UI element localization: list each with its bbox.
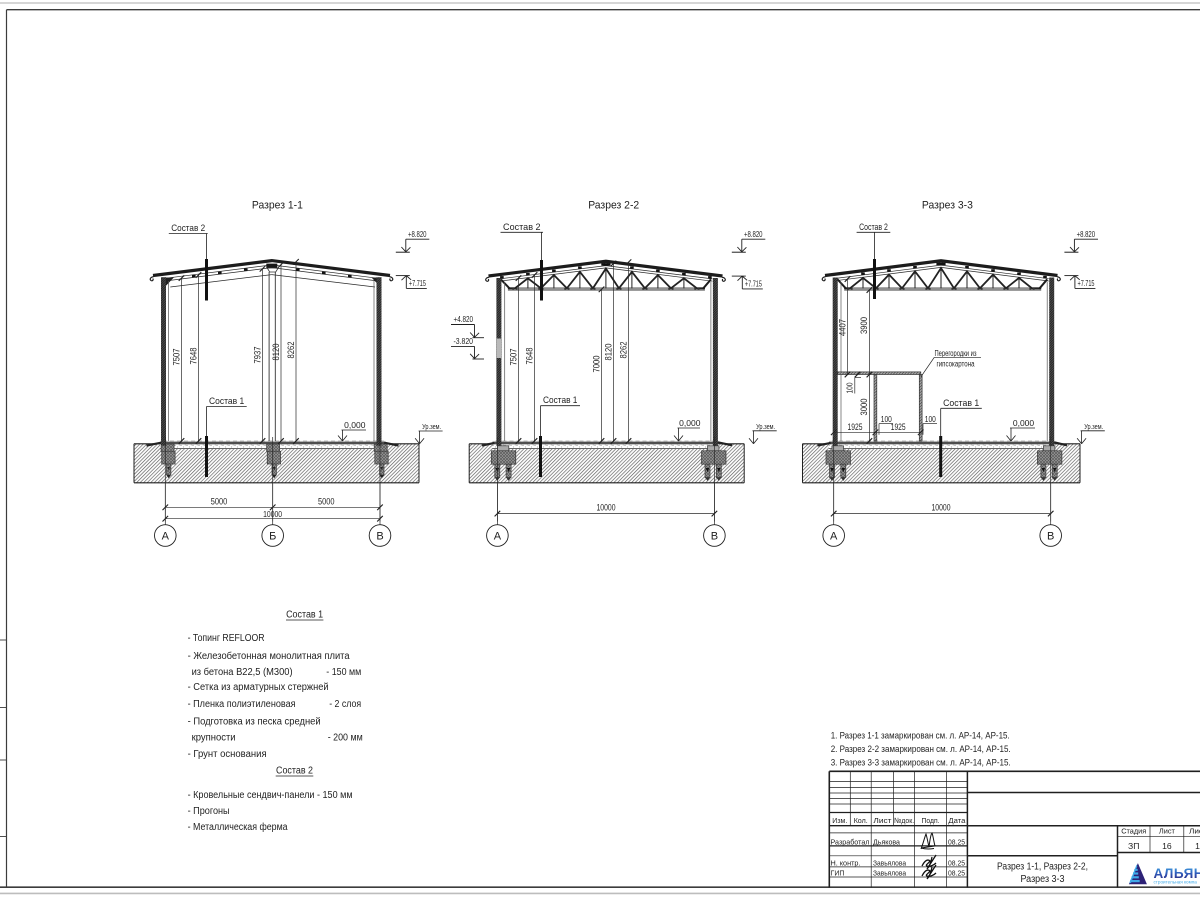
svg-text:- 200 мм: - 200 мм xyxy=(328,732,363,743)
svg-text:5000: 5000 xyxy=(318,497,335,507)
svg-text:ГИП: ГИП xyxy=(831,869,845,878)
svg-text:Стадия: Стадия xyxy=(1121,827,1146,836)
svg-text:В: В xyxy=(1047,531,1054,543)
svg-text:- Прогоны: - Прогоны xyxy=(188,806,230,817)
svg-text:№док.: №док. xyxy=(894,816,914,825)
svg-text:100: 100 xyxy=(881,414,892,424)
svg-text:- Пленка полиэтиленовая: - Пленка полиэтиленовая xyxy=(188,699,296,710)
svg-text:3900: 3900 xyxy=(859,317,869,334)
svg-text:Разрез 2-2: Разрез 2-2 xyxy=(588,200,639,212)
svg-text:А: А xyxy=(830,531,838,543)
svg-text:Разрез 1-1: Разрез 1-1 xyxy=(252,200,303,212)
svg-text:7648: 7648 xyxy=(188,348,198,365)
svg-text:16: 16 xyxy=(1162,841,1172,851)
svg-text:Дьякова: Дьякова xyxy=(873,837,901,846)
svg-text:0,000: 0,000 xyxy=(1013,418,1035,428)
svg-text:Лис: Лис xyxy=(1189,827,1200,836)
svg-text:10000: 10000 xyxy=(932,503,951,513)
svg-text:- Кровельные сендвич-панели -: - Кровельные сендвич-панели - 150 мм xyxy=(188,790,353,801)
svg-text:10000: 10000 xyxy=(597,503,616,513)
svg-text:+7.715: +7.715 xyxy=(409,279,426,288)
svg-text:0,000: 0,000 xyxy=(679,418,701,428)
svg-text:- Грунт основания: - Грунт основания xyxy=(188,749,267,760)
svg-text:Ур.зем.: Ур.зем. xyxy=(756,422,775,431)
svg-text:Состав 2: Состав 2 xyxy=(171,223,205,234)
svg-text:Перегородки из: Перегородки из xyxy=(935,349,977,358)
svg-text:- Подготовка из песка средней: - Подготовка из песка средней xyxy=(188,716,321,727)
svg-text:Ур.зем.: Ур.зем. xyxy=(1084,422,1103,431)
svg-text:- 150 мм: - 150 мм xyxy=(326,667,361,678)
svg-text:Состав 1: Состав 1 xyxy=(209,396,244,407)
svg-text:100: 100 xyxy=(844,382,854,393)
svg-text:Состав 1: Состав 1 xyxy=(286,610,323,621)
svg-text:Изм.: Изм. xyxy=(832,816,847,825)
svg-text:3000: 3000 xyxy=(859,399,869,416)
svg-text:+8.820: +8.820 xyxy=(744,230,763,239)
svg-text:Завьялова: Завьялова xyxy=(873,858,907,867)
svg-text:- Металлическая ферма: - Металлическая ферма xyxy=(188,822,288,833)
svg-text:Состав 2: Состав 2 xyxy=(859,222,888,233)
svg-text:100: 100 xyxy=(925,414,936,424)
svg-text:1: 1 xyxy=(1195,841,1200,851)
svg-text:- Железобетонная монолитная п: - Железобетонная монолитная плита xyxy=(188,651,351,662)
svg-text:Разрез 1-1, Разрез 2-2,: Разрез 1-1, Разрез 2-2, xyxy=(997,862,1088,873)
svg-text:- 2 слоя: - 2 слоя xyxy=(329,699,361,710)
svg-text:+4.820: +4.820 xyxy=(454,315,474,324)
svg-text:8120: 8120 xyxy=(271,344,281,361)
svg-text:3. Разрез 3-3 замаркирован см.: 3. Разрез 3-3 замаркирован см. л. АР-14,… xyxy=(831,757,1011,768)
svg-text:- Сетка из арматурных стержней: - Сетка из арматурных стержней xyxy=(188,682,329,693)
svg-text:7507: 7507 xyxy=(508,349,518,366)
svg-text:1. Разрез 1-1 замаркирован см.: 1. Разрез 1-1 замаркирован см. л. АР-14,… xyxy=(831,731,1010,742)
svg-text:Лист: Лист xyxy=(1159,827,1175,836)
svg-text:08.25: 08.25 xyxy=(948,837,965,846)
svg-text:8262: 8262 xyxy=(286,342,296,359)
svg-text:Разработал: Разработал xyxy=(831,837,870,846)
svg-text:7000: 7000 xyxy=(591,356,601,373)
svg-text:Дата: Дата xyxy=(948,816,966,825)
svg-text:8262: 8262 xyxy=(618,342,628,359)
svg-text:Разрез 3-3: Разрез 3-3 xyxy=(1021,874,1065,885)
svg-text:08.25: 08.25 xyxy=(948,858,965,867)
svg-text:Разрез 3-3: Разрез 3-3 xyxy=(922,200,973,212)
svg-text:Состав 1: Состав 1 xyxy=(943,398,979,409)
svg-text:4407: 4407 xyxy=(837,319,847,336)
svg-text:строительная компа: строительная компа xyxy=(1154,879,1198,884)
svg-text:Кол.: Кол. xyxy=(854,816,868,825)
svg-text:08.25: 08.25 xyxy=(948,869,965,878)
svg-text:Состав 2: Состав 2 xyxy=(503,222,541,233)
svg-text:Лист: Лист xyxy=(873,816,892,825)
svg-text:+8.820: +8.820 xyxy=(408,230,427,239)
svg-text:А: А xyxy=(494,531,502,543)
svg-text:А: А xyxy=(162,531,170,543)
svg-text:крупности: крупности xyxy=(192,732,236,743)
svg-text:Состав 2: Состав 2 xyxy=(276,766,313,777)
svg-text:0,000: 0,000 xyxy=(344,420,366,430)
svg-text:Ур.зем.: Ур.зем. xyxy=(422,422,441,431)
svg-text:2. Разрез 2-2 замаркирован см.: 2. Разрез 2-2 замаркирован см. л. АР-14,… xyxy=(831,744,1011,755)
svg-text:1925: 1925 xyxy=(848,422,863,432)
svg-text:ЗП: ЗП xyxy=(1128,841,1139,851)
svg-text:+7.715: +7.715 xyxy=(745,280,762,289)
svg-text:+7.715: +7.715 xyxy=(1078,279,1095,288)
svg-text:В: В xyxy=(711,531,718,543)
svg-text:Завьялова: Завьялова xyxy=(873,869,907,878)
svg-text:- Топинг REFLOOR: - Топинг REFLOOR xyxy=(188,633,265,644)
svg-text:7937: 7937 xyxy=(252,347,262,364)
svg-text:7648: 7648 xyxy=(524,348,534,365)
svg-text:7507: 7507 xyxy=(171,349,181,366)
svg-text:Подп.: Подп. xyxy=(922,816,940,825)
svg-text:Н. контр.: Н. контр. xyxy=(831,858,861,867)
svg-text:-3.820: -3.820 xyxy=(454,337,474,346)
svg-text:5000: 5000 xyxy=(211,497,228,507)
svg-text:8120: 8120 xyxy=(603,344,613,361)
svg-text:Б: Б xyxy=(269,531,276,543)
svg-text:гипсокартона: гипсокартона xyxy=(937,359,976,368)
svg-text:из бетона В22,5 (М300): из бетона В22,5 (М300) xyxy=(192,667,293,678)
svg-text:В: В xyxy=(376,531,383,543)
svg-text:+8.820: +8.820 xyxy=(1077,230,1096,239)
svg-text:Состав 1: Состав 1 xyxy=(543,395,578,406)
